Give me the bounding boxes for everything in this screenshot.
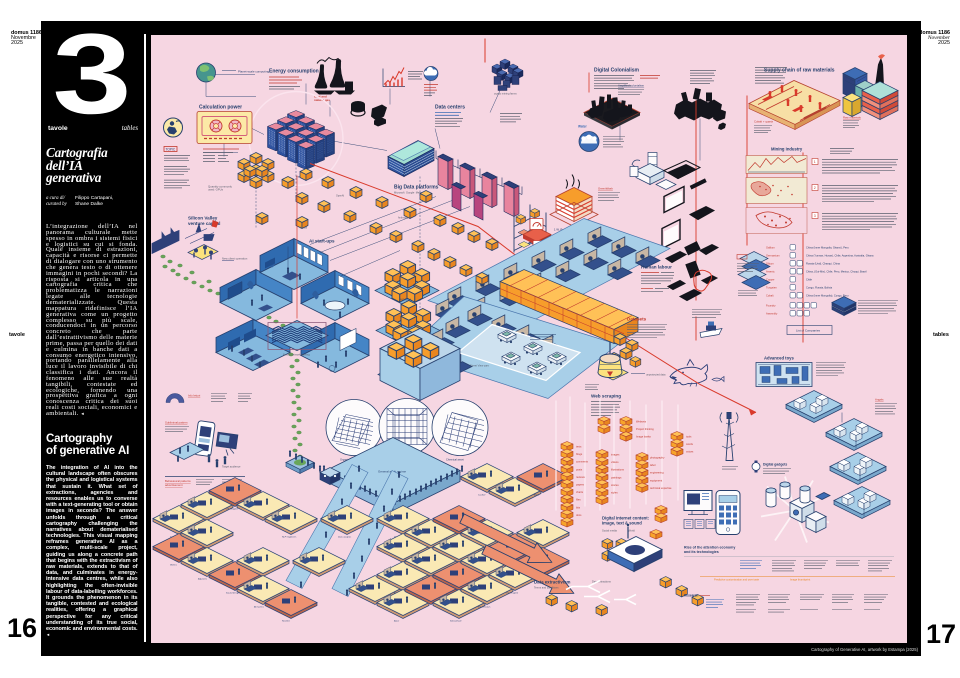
svg-text:Digital gadgets: Digital gadgets xyxy=(763,462,787,466)
svg-text:Datasets: Datasets xyxy=(627,316,647,321)
svg-text:styles: styles xyxy=(611,490,618,494)
svg-text:Image, text & sound: Image, text & sound xyxy=(602,520,642,525)
svg-text:Assembly: Assembly xyxy=(766,311,778,315)
svg-text:Travel agent: Travel agent xyxy=(506,591,518,594)
svg-text:3: 3 xyxy=(814,214,816,218)
svg-text:Data centers: Data centers xyxy=(435,104,465,110)
svg-text:Cobalt + quartz: Cobalt + quartz xyxy=(754,119,774,123)
svg-text:AI trainers: AI trainers xyxy=(253,605,265,608)
svg-text:Tungsten: Tungsten xyxy=(766,285,777,289)
svg-text:2: 2 xyxy=(814,186,816,190)
svg-text:tools: tools xyxy=(686,434,692,438)
svg-text:Writers: Writers xyxy=(170,563,178,566)
svg-text:Planet-scale computing: Planet-scale computing xyxy=(238,69,270,73)
svg-text:China, (Gui-Min), Chile, Peru,: China, (Gui-Min), Chile, Peru, Mexico, C… xyxy=(806,269,867,273)
svg-text:AI start-ups: AI start-ups xyxy=(309,238,335,243)
svg-text:Calculation power: Calculation power xyxy=(199,104,242,110)
svg-text:Research: Research xyxy=(684,593,698,597)
svg-text:bits: bits xyxy=(576,505,581,509)
svg-text:stories: stories xyxy=(611,482,619,486)
svg-text:China (Yunnan, Hunan), Chile,: China (Yunnan, Hunan), Chile, Argentina,… xyxy=(806,253,874,257)
svg-text:words: words xyxy=(686,442,694,446)
svg-text:technical expertise: technical expertise xyxy=(650,485,672,489)
svg-text:World: World xyxy=(628,528,635,532)
svg-text:TOPIC: TOPIC xyxy=(166,147,176,151)
svg-text:advertisement: advertisement xyxy=(165,483,183,487)
svg-text:Enumerators: Enumerators xyxy=(478,605,491,608)
svg-text:crypto mining farms: crypto mining farms xyxy=(494,91,517,95)
svg-text:New client operation: New client operation xyxy=(222,256,248,260)
svg-text:unprotected data: unprotected data xyxy=(646,372,666,376)
svg-text:GreenWash: GreenWash xyxy=(598,186,613,190)
svg-text:blogs: blogs xyxy=(576,452,583,456)
svg-text:labor: labor xyxy=(650,463,656,467)
svg-text:posts: posts xyxy=(576,467,583,471)
svg-text:Artist: Artist xyxy=(533,493,539,496)
svg-text:Subliminal pattern: Subliminal pattern xyxy=(165,420,188,424)
svg-text:UX designer: UX designer xyxy=(226,508,238,510)
svg-text:OpenAI: OpenAI xyxy=(336,194,344,197)
svg-text:Data analysts: Data analysts xyxy=(338,535,352,538)
svg-text:Image thumbprint: Image thumbprint xyxy=(790,577,810,581)
svg-text:and its technologies: and its technologies xyxy=(684,549,719,553)
svg-text:Human labour: Human labour xyxy=(641,264,672,269)
svg-text:Water: Water xyxy=(578,124,587,128)
svg-text:Web scraping: Web scraping xyxy=(591,393,621,398)
svg-text:Cashier: Cashier xyxy=(478,494,486,496)
svg-text:comments: comments xyxy=(576,459,589,463)
svg-text:files: files xyxy=(576,497,581,501)
svg-text:Data extractivism: Data extractivism xyxy=(534,579,570,584)
svg-text:Congo, Russia, Bolivia: Congo, Russia, Bolivia xyxy=(806,285,833,289)
svg-text:voices: voices xyxy=(686,449,694,453)
svg-text:Rise of the attention economy: Rise of the attention economy xyxy=(684,545,735,549)
svg-text:Project thinking: Project thinking xyxy=(636,427,654,431)
svg-text:Image banks: Image banks xyxy=(636,434,652,438)
svg-text:Energy consumption: Energy consumption xyxy=(269,68,319,74)
svg-text:Germanium: Germanium xyxy=(766,253,780,257)
svg-text:Target audience: Target audience xyxy=(222,464,241,468)
svg-text:charts: charts xyxy=(576,490,584,494)
svg-text:images: images xyxy=(611,452,620,456)
svg-text:Gallium: Gallium xyxy=(766,245,775,249)
svg-text:Neural network training: Neural network training xyxy=(283,352,310,356)
svg-text:Terms and conditions: Terms and conditions xyxy=(534,585,559,589)
svg-text:Websets: Websets xyxy=(636,419,647,423)
svg-text:docs: docs xyxy=(576,512,582,516)
svg-text:used: GPUs: used: GPUs xyxy=(208,187,224,191)
svg-text:Schoolmate: Schoolmate xyxy=(450,619,462,622)
svg-text:Russia (Ural), Charqui, China: Russia (Ural), Charqui, China xyxy=(806,261,840,265)
svg-text:Social media: Social media xyxy=(602,528,617,532)
svg-text:videos: videos xyxy=(611,460,619,464)
svg-text:Silicon Valley: Silicon Valley xyxy=(188,215,218,220)
svg-text:List of Companies: List of Companies xyxy=(796,328,821,332)
svg-text:Chile: Chile xyxy=(806,277,812,281)
svg-text:Predictive customization and u: Predictive customization and user taste xyxy=(714,577,760,581)
svg-text:Actor: Actor xyxy=(393,619,399,622)
svg-text:equipment: equipment xyxy=(650,478,662,482)
svg-text:photography: photography xyxy=(650,455,665,459)
svg-text:Street View cars: Street View cars xyxy=(470,363,490,367)
svg-text:engineering: engineering xyxy=(650,470,664,474)
svg-text:Angels: Angels xyxy=(875,397,884,401)
svg-text:papers: papers xyxy=(576,482,585,486)
svg-text:Foundry: Foundry xyxy=(766,303,776,307)
svg-text:Arsenic: Arsenic xyxy=(766,269,775,273)
svg-text:Novelist: Novelist xyxy=(282,619,290,622)
svg-text:Mining industry: Mining industry xyxy=(771,146,803,151)
svg-text:Anthropic: Anthropic xyxy=(398,216,409,219)
svg-text:illustrations: illustrations xyxy=(611,467,625,471)
svg-text:paintings: paintings xyxy=(611,475,622,479)
svg-text:Big Data platforms: Big Data platforms xyxy=(394,184,439,190)
svg-text:Adjusters: Adjusters xyxy=(197,577,208,580)
svg-text:Digital Colonialism: Digital Colonialism xyxy=(594,67,640,73)
svg-text:China (Inner Mongolia, Shanxi): China (Inner Mongolia, Shanxi), Peru xyxy=(806,245,849,249)
svg-text:Advanced toys: Advanced toys xyxy=(764,355,794,360)
svg-text:texts: texts xyxy=(576,444,582,448)
svg-text:Chemical asset: Chemical asset xyxy=(446,457,464,461)
svg-text:Cobalt: Cobalt xyxy=(766,293,774,297)
svg-text:NLP engineers: NLP engineers xyxy=(282,536,297,538)
svg-text:reviews: reviews xyxy=(576,474,585,478)
svg-text:Mistral: Mistral xyxy=(300,226,308,229)
svg-text:Amplified colonialism: Amplified colonialism xyxy=(618,83,645,87)
svg-text:Info lettori: Info lettori xyxy=(188,393,201,397)
svg-text:1: 1 xyxy=(814,160,816,164)
